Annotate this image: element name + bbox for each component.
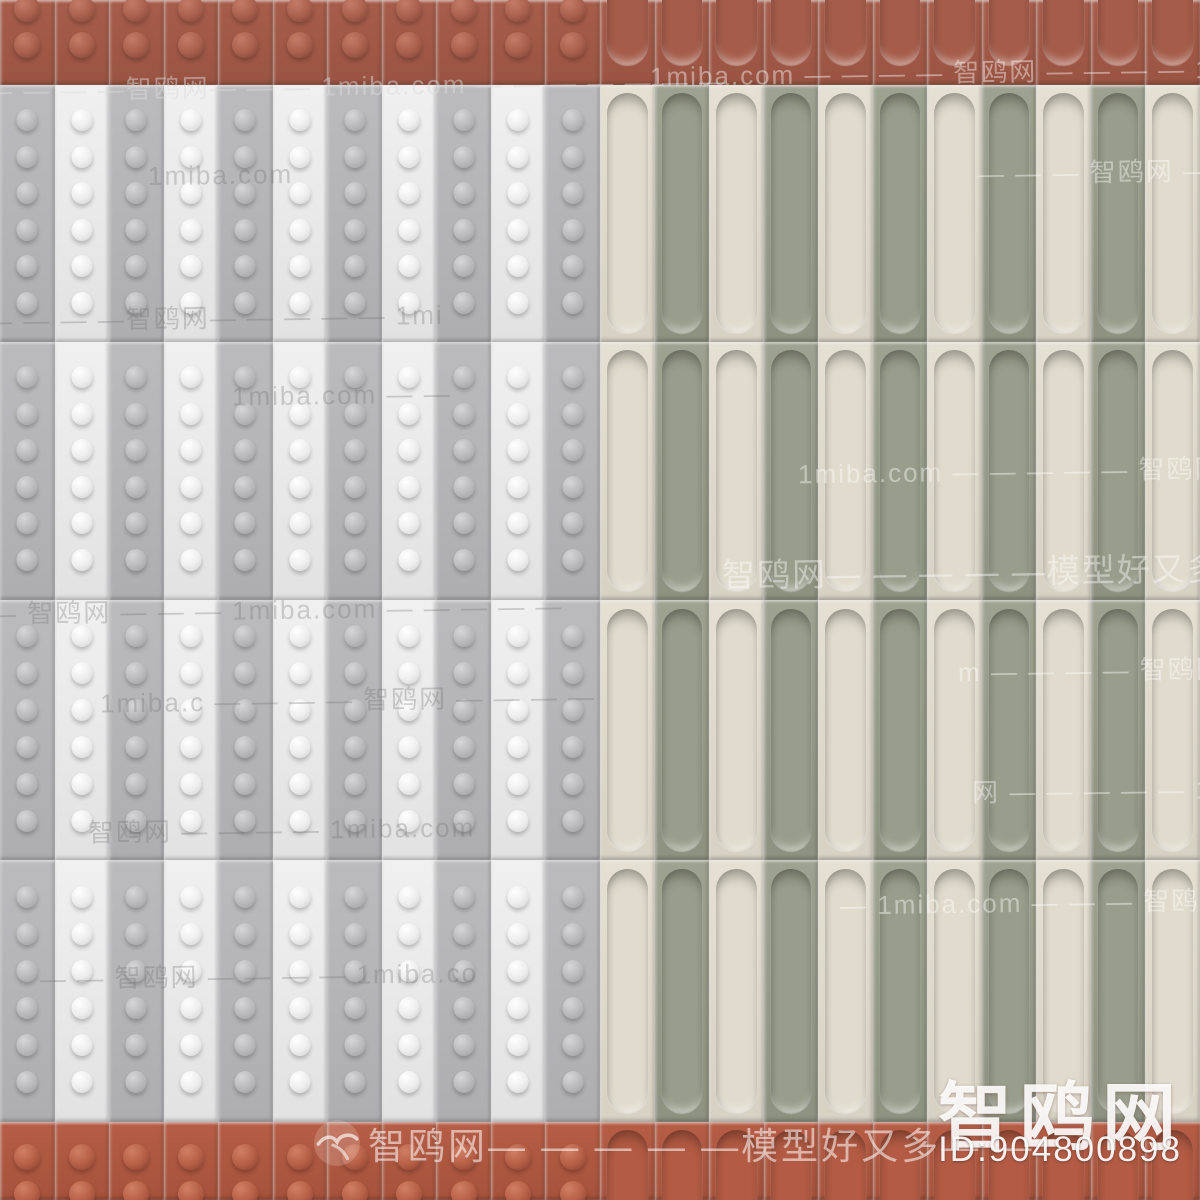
tile-dot: [126, 1071, 147, 1093]
tile-dot: [399, 736, 420, 758]
tile-dot: [560, 0, 586, 22]
tile-dot: [560, 1181, 586, 1200]
tile-dot: [235, 366, 256, 388]
tile-dot: [290, 699, 311, 721]
tile-dot: [290, 219, 311, 241]
tile: [655, 85, 710, 342]
tile-dot: [508, 662, 529, 684]
tile: [491, 0, 546, 85]
tile: [764, 1122, 819, 1200]
tile: [273, 860, 328, 1122]
tile-capsule: [934, 609, 975, 851]
tile-dot: [453, 512, 474, 534]
tile-dot: [344, 439, 365, 461]
tile-dot: [453, 439, 474, 461]
tile-dot: [71, 736, 92, 758]
tile: [927, 860, 982, 1122]
tile-dot: [399, 219, 420, 241]
tile: [382, 860, 437, 1122]
tile: [600, 600, 655, 860]
tile: [545, 1122, 600, 1200]
tile: [1145, 860, 1200, 1122]
tile: [764, 342, 819, 600]
tile: [709, 860, 764, 1122]
tile: [1036, 600, 1091, 860]
tile-dot: [178, 32, 204, 58]
tile-dot: [71, 810, 92, 832]
tile-dot: [399, 1071, 420, 1093]
tile-dot: [344, 292, 365, 314]
tile-dot: [232, 1144, 258, 1170]
tile-capsule: [607, 350, 648, 591]
tile: [1036, 0, 1091, 85]
tile-dot: [344, 1071, 365, 1093]
tile-dot: [562, 512, 583, 534]
tile-dot: [126, 182, 147, 204]
tile-capsule: [1043, 0, 1084, 65]
tile-dot: [71, 960, 92, 982]
tile-dot: [508, 146, 529, 168]
tile: [382, 342, 437, 600]
tile-dot: [126, 403, 147, 425]
tile-capsule: [716, 609, 757, 851]
tile-dot: [290, 549, 311, 571]
tile: [600, 860, 655, 1122]
tile-dot: [235, 146, 256, 168]
tile-dot: [17, 182, 38, 204]
tile-dot: [290, 960, 311, 982]
tile: [164, 342, 219, 600]
tile-dot: [235, 476, 256, 498]
tile-dot: [235, 662, 256, 684]
tile-dot: [344, 255, 365, 277]
tile-dot: [453, 1034, 474, 1056]
tile-dot: [399, 146, 420, 168]
tile-dot: [126, 109, 147, 131]
tile: [600, 1122, 655, 1200]
tile-dot: [290, 736, 311, 758]
tile-capsule: [607, 1130, 648, 1200]
tile-capsule: [1152, 93, 1193, 333]
tile: [109, 0, 164, 85]
tile-dot: [399, 810, 420, 832]
tile: [164, 600, 219, 860]
tile-dot: [344, 403, 365, 425]
tile-dot: [235, 439, 256, 461]
tile: [109, 600, 164, 860]
tile: [873, 600, 928, 860]
tile-capsule: [662, 869, 703, 1113]
tile-dot: [232, 0, 258, 22]
tile: [218, 600, 273, 860]
tile: [327, 342, 382, 600]
tile-dot: [399, 109, 420, 131]
tile-capsule: [1043, 93, 1084, 333]
tile-dot: [451, 1144, 477, 1170]
tile: [1091, 342, 1146, 600]
tile-dot: [71, 255, 92, 277]
tile: [55, 860, 110, 1122]
tile-capsule: [1152, 609, 1193, 851]
tile: [382, 0, 437, 85]
tile-dot: [344, 736, 365, 758]
tile: [55, 600, 110, 860]
tile-capsule: [1043, 350, 1084, 591]
tile-dot: [451, 1181, 477, 1200]
tile: [327, 1122, 382, 1200]
tile-dot: [342, 1181, 368, 1200]
tile: [1036, 85, 1091, 342]
tile-dot: [562, 997, 583, 1019]
tile-dot: [17, 960, 38, 982]
tile-dot: [562, 476, 583, 498]
tile-dot: [453, 146, 474, 168]
tile-dot: [344, 960, 365, 982]
tile-dot: [235, 886, 256, 908]
tile-dot: [344, 109, 365, 131]
tile-dot: [126, 146, 147, 168]
tile-material-preview: — — — —智鸥网— — — 1miba.com — — — — — — —1…: [0, 0, 1200, 1200]
tile-dot: [508, 182, 529, 204]
tile-dot: [17, 923, 38, 945]
tile: [982, 0, 1037, 85]
tile-dot: [290, 997, 311, 1019]
tile-dot: [344, 366, 365, 388]
tile-dot: [180, 292, 201, 314]
tile-dot: [71, 1034, 92, 1056]
tile-dot: [290, 403, 311, 425]
tile: [927, 600, 982, 860]
tile-dot: [17, 997, 38, 1019]
tile-dot: [508, 997, 529, 1019]
tile-dot: [235, 773, 256, 795]
tile-dot: [180, 366, 201, 388]
tile-dot: [344, 146, 365, 168]
tile-capsule: [771, 609, 812, 851]
tile-dot: [123, 1144, 149, 1170]
tile-dot: [399, 549, 420, 571]
tile-row-band: [600, 342, 1200, 600]
tile: [655, 1122, 710, 1200]
tile-dot: [17, 1034, 38, 1056]
tile-dot: [180, 109, 201, 131]
tile-row-band: [600, 860, 1200, 1122]
tile-dot: [180, 439, 201, 461]
tile: [55, 0, 110, 85]
tile-capsule: [989, 1130, 1030, 1200]
tile-dot: [123, 32, 149, 58]
tile-dot: [180, 960, 201, 982]
tile: [0, 1122, 55, 1200]
tile-capsule: [880, 609, 921, 851]
tile-capsule: [934, 1130, 975, 1200]
tile-dot: [14, 1144, 40, 1170]
tile-dot: [235, 549, 256, 571]
tile-dot: [17, 549, 38, 571]
tile-dot: [399, 923, 420, 945]
tile: [491, 342, 546, 600]
tile-dot: [126, 736, 147, 758]
tile-capsule: [1043, 869, 1084, 1113]
tile-dot: [126, 997, 147, 1019]
tile-dot: [344, 182, 365, 204]
tile: [55, 1122, 110, 1200]
tile-dot: [508, 1034, 529, 1056]
tile: [600, 85, 655, 342]
tile-dot: [235, 292, 256, 314]
tile-dot: [505, 32, 531, 58]
tile-dot: [562, 960, 583, 982]
tile-dot: [235, 255, 256, 277]
tile: [545, 860, 600, 1122]
tile-dot: [290, 512, 311, 534]
tile-dot: [126, 886, 147, 908]
tile-dot: [180, 182, 201, 204]
tile-capsule: [607, 0, 648, 65]
tile: [1036, 860, 1091, 1122]
tile: [164, 860, 219, 1122]
tile-dot: [453, 923, 474, 945]
tile-dot: [71, 366, 92, 388]
tile-dot: [126, 255, 147, 277]
tile-capsule: [1152, 869, 1193, 1113]
tile-dot: [399, 886, 420, 908]
tile-capsule: [1152, 1130, 1193, 1200]
tile-capsule: [825, 350, 866, 591]
tile-dot: [17, 886, 38, 908]
tile-dot: [562, 146, 583, 168]
tile: [655, 860, 710, 1122]
tile: [927, 85, 982, 342]
tile: [327, 0, 382, 85]
tile-dot: [342, 32, 368, 58]
tile-dot: [180, 512, 201, 534]
tile: [818, 1122, 873, 1200]
tile-capsule: [880, 1130, 921, 1200]
tile-dot: [69, 0, 95, 22]
tile: [491, 1122, 546, 1200]
tile-dot: [453, 662, 474, 684]
tile: [818, 0, 873, 85]
tile-capsule: [662, 0, 703, 65]
tile-dot: [232, 1181, 258, 1200]
tile: [0, 85, 55, 342]
tile-dot: [71, 773, 92, 795]
tile-dot: [71, 109, 92, 131]
tile-capsule: [1152, 0, 1193, 65]
tile-capsule: [662, 1130, 703, 1200]
tile-capsule: [934, 350, 975, 591]
tile-dot: [396, 1181, 422, 1200]
tile-dot: [508, 810, 529, 832]
tile-capsule: [1043, 609, 1084, 851]
tile-dot: [508, 219, 529, 241]
tile-dot: [180, 810, 201, 832]
tile: [109, 1122, 164, 1200]
tile: [982, 600, 1037, 860]
tile-dot: [178, 0, 204, 22]
tile-capsule: [771, 350, 812, 591]
tile: [327, 600, 382, 860]
tile-dot: [178, 1181, 204, 1200]
tile-dot: [344, 886, 365, 908]
tile-dot: [344, 997, 365, 1019]
tile-dot: [180, 997, 201, 1019]
tile-dot: [344, 625, 365, 647]
tile-capsule: [825, 1130, 866, 1200]
tile: [382, 85, 437, 342]
tile-dot: [453, 886, 474, 908]
tile: [55, 85, 110, 342]
tile-capsule: [1098, 869, 1139, 1113]
tile: [655, 600, 710, 860]
tile-row-band: [0, 860, 600, 1122]
tile-dot: [14, 0, 40, 22]
tile-dot: [453, 476, 474, 498]
tile-dot: [17, 366, 38, 388]
tile-dot: [290, 773, 311, 795]
tile: [764, 860, 819, 1122]
tile: [927, 1122, 982, 1200]
tile-capsule: [716, 1130, 757, 1200]
tile-capsule: [716, 350, 757, 591]
tile-capsule: [880, 0, 921, 65]
tile: [927, 0, 982, 85]
tile-dot: [290, 476, 311, 498]
tile-dot: [396, 32, 422, 58]
tile-dot: [508, 403, 529, 425]
tile: [1091, 0, 1146, 85]
tile-dot: [290, 439, 311, 461]
tile-dot: [180, 1071, 201, 1093]
tile-capsule: [716, 869, 757, 1113]
tile-dot: [562, 662, 583, 684]
tile-dot: [344, 219, 365, 241]
tile-dot: [71, 625, 92, 647]
tile-row-band: [0, 1122, 600, 1200]
tile-dot: [344, 549, 365, 571]
tile-dot: [71, 886, 92, 908]
tile-dot: [396, 0, 422, 22]
tile-dot: [399, 512, 420, 534]
tile-dot: [451, 0, 477, 22]
tile: [873, 1122, 928, 1200]
tile-dot: [235, 1071, 256, 1093]
tile-dot: [71, 1071, 92, 1093]
tile: [1091, 600, 1146, 860]
tile-capsule: [716, 93, 757, 333]
tile: [600, 342, 655, 600]
tile-dot: [178, 1144, 204, 1170]
tile: [818, 85, 873, 342]
tile: [655, 0, 710, 85]
tile-capsule: [1098, 350, 1139, 591]
tile: [764, 85, 819, 342]
tile-dot: [562, 1034, 583, 1056]
tile: [327, 860, 382, 1122]
tile-dot: [180, 736, 201, 758]
tile-dot: [126, 662, 147, 684]
tile-dot: [399, 292, 420, 314]
tile: [982, 860, 1037, 1122]
tile-dot: [123, 1181, 149, 1200]
tile-dot: [235, 109, 256, 131]
tile-dot: [14, 32, 40, 58]
tile-dot: [71, 219, 92, 241]
tile-dot: [17, 439, 38, 461]
tile-dot: [235, 219, 256, 241]
tile: [109, 860, 164, 1122]
tile-dot: [508, 960, 529, 982]
tile-capsule: [934, 0, 975, 65]
tile-dot: [344, 512, 365, 534]
tile-dot: [69, 32, 95, 58]
tile-dot: [344, 662, 365, 684]
tile-dot: [396, 1144, 422, 1170]
tile-row-band: [600, 85, 1200, 342]
tile-dot: [399, 699, 420, 721]
tile: [273, 342, 328, 600]
tile-dot: [399, 439, 420, 461]
tile-dot: [180, 146, 201, 168]
tile-dot: [71, 699, 92, 721]
tile-capsule: [825, 93, 866, 333]
tile-dot: [562, 886, 583, 908]
tile-capsule: [771, 0, 812, 65]
tile: [273, 85, 328, 342]
tile: [655, 342, 710, 600]
tile-dot: [562, 625, 583, 647]
tile: [491, 85, 546, 342]
tile: [109, 85, 164, 342]
tile: [436, 342, 491, 600]
tile-dot: [453, 773, 474, 795]
tile-dot: [235, 182, 256, 204]
tile-dot: [290, 923, 311, 945]
tile-dot: [344, 810, 365, 832]
tile: [327, 85, 382, 342]
tile-dot: [562, 773, 583, 795]
tile-capsule: [880, 93, 921, 333]
tile-dot: [180, 773, 201, 795]
tile-dot: [399, 476, 420, 498]
tile-dot: [508, 476, 529, 498]
tile-dot: [560, 32, 586, 58]
tile: [1145, 342, 1200, 600]
tile: [55, 342, 110, 600]
tile-dot: [453, 960, 474, 982]
tile-dot: [71, 923, 92, 945]
tile-capsule: [1098, 0, 1139, 65]
tile: [1091, 860, 1146, 1122]
tile: [873, 860, 928, 1122]
tile-dot: [17, 625, 38, 647]
tile-dot: [17, 810, 38, 832]
tile-dot: [180, 219, 201, 241]
tile-dot: [180, 403, 201, 425]
tile: [545, 342, 600, 600]
tile-dot: [399, 960, 420, 982]
tile-dot: [453, 625, 474, 647]
tile-dot: [453, 366, 474, 388]
tile-capsule: [662, 350, 703, 591]
tile-dot: [123, 0, 149, 22]
tile-dot: [232, 32, 258, 58]
tile-dot: [562, 736, 583, 758]
tile-dot: [126, 699, 147, 721]
tile-dot: [290, 366, 311, 388]
tile-dot: [453, 109, 474, 131]
